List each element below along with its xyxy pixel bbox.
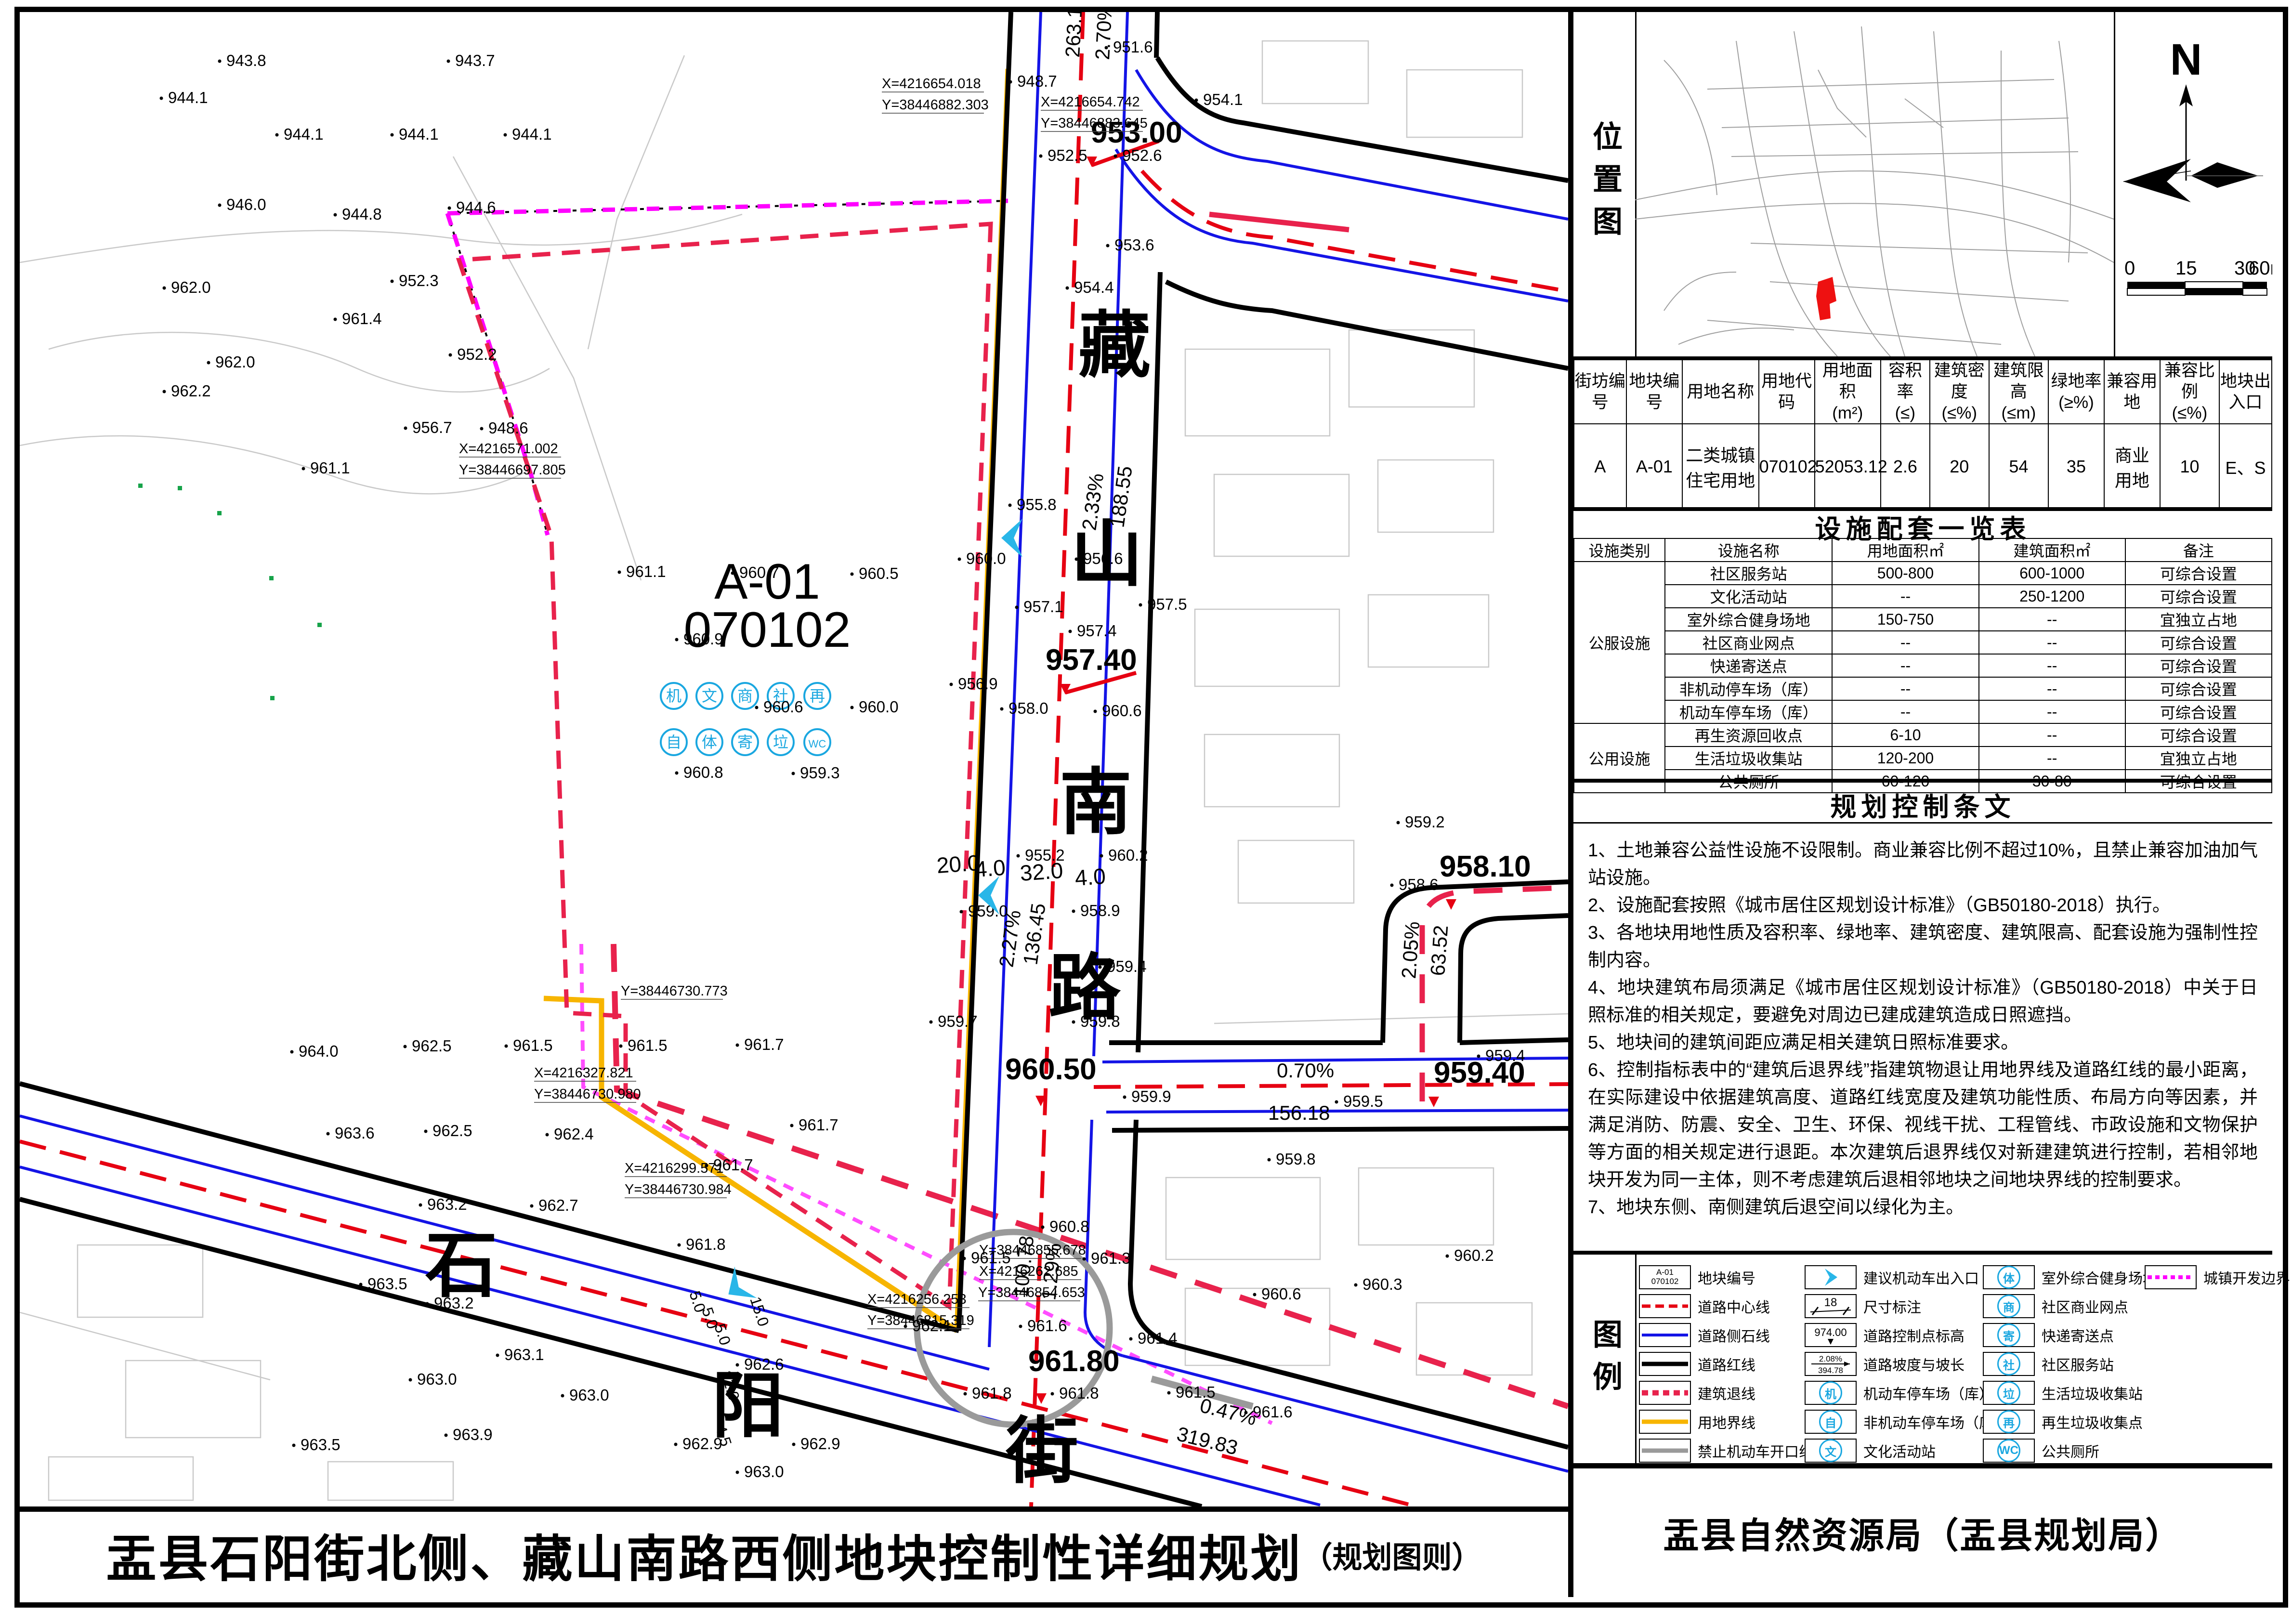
coordinate-x-label: X=4216654.018 bbox=[882, 76, 981, 92]
control-point-leaders bbox=[1065, 141, 1159, 693]
spot-elevation-value: 964.0 bbox=[299, 1042, 339, 1060]
facility-cell: 可综合设置 bbox=[2125, 677, 2272, 700]
facility-cell: 机动车停车场（库） bbox=[1665, 700, 1832, 723]
coordinate-y-label: Y=38446697.805 bbox=[459, 462, 566, 478]
location-map-row: 位置图 bbox=[1573, 12, 2272, 356]
legend-swatch-curb-icon bbox=[1639, 1323, 1691, 1347]
facility-cell: -- bbox=[1832, 631, 1978, 654]
legend-items: A-01070102地块编号道路中心线道路侧石线道路红线建筑退线用地界线禁止机动… bbox=[1635, 1255, 2272, 1467]
spot-elevation-value: 960.6 bbox=[763, 698, 803, 716]
dimension-value: 20.0 bbox=[936, 850, 981, 878]
indicator-cell: 10 bbox=[2160, 424, 2219, 510]
legend-item: 18尺寸标注 bbox=[1805, 1292, 2008, 1320]
spot-elevation-value: 959.5 bbox=[1343, 1092, 1383, 1110]
location-inset-map bbox=[1635, 12, 2115, 356]
agency-title: 盂县自然资源局（盂县规划局） bbox=[1573, 1463, 2272, 1597]
coordinate-y-label: Y=38446730.980 bbox=[534, 1087, 641, 1102]
legend-item: 道路红线 bbox=[1639, 1350, 1813, 1378]
north-label: N bbox=[2170, 35, 2202, 84]
spot-elevation-value: 957.5 bbox=[1147, 595, 1187, 613]
spot-elevation-dot bbox=[618, 571, 621, 574]
facility-col-header: 建筑面积㎡ bbox=[1979, 538, 2125, 562]
legend-swatch-circle-icon: 商 bbox=[1983, 1294, 2035, 1318]
scale-tick: 60m bbox=[2249, 258, 2272, 279]
facility-cell: 文化活动站 bbox=[1665, 585, 1832, 608]
legend-swatch-entrance-icon bbox=[1805, 1265, 1857, 1289]
spot-elevation-value: 963.6 bbox=[335, 1124, 375, 1142]
legend-item: 建议机动车出入口 bbox=[1805, 1263, 2008, 1291]
spot-elevation-value: 956.7 bbox=[412, 419, 452, 436]
spot-elevation-dot bbox=[1015, 606, 1019, 609]
facility-cell: 可综合设置 bbox=[2125, 723, 2272, 747]
spot-elevation-dot bbox=[448, 207, 451, 210]
legend-swatch-noopen-icon bbox=[1639, 1439, 1691, 1463]
dimension-value: 4.0 bbox=[974, 855, 1006, 882]
spot-elevation-value: 963.0 bbox=[569, 1386, 609, 1404]
info-panel: 位置图 bbox=[1573, 12, 2272, 1592]
spot-elevation-value: 962.2 bbox=[171, 382, 211, 400]
legend-column: 城镇开发边界 bbox=[2145, 1263, 2290, 1292]
spot-elevation-value: 961.7 bbox=[799, 1116, 838, 1134]
facility-col-header: 用地面积㎡ bbox=[1832, 538, 1978, 562]
indicator-cell: 商业 用地 bbox=[2104, 424, 2160, 510]
spot-elevation-dot bbox=[1139, 603, 1142, 607]
spot-elevation-dot bbox=[1354, 1283, 1358, 1287]
spot-elevation-value: 954.1 bbox=[1203, 91, 1243, 108]
spot-elevation-dot bbox=[207, 361, 210, 365]
spot-elevation-dot bbox=[1477, 1055, 1480, 1058]
indicator-col-header: 地块编号 bbox=[1626, 360, 1682, 424]
parcel-code: A-01 bbox=[714, 554, 820, 610]
legend-item: 寄快递寄送点 bbox=[1983, 1321, 2157, 1349]
spot-elevation-value: 960.2 bbox=[1454, 1246, 1494, 1264]
spot-elevation-dot bbox=[292, 1444, 296, 1447]
spot-elevation-value: 959.8 bbox=[1080, 1012, 1120, 1030]
spot-elevation-value: 948.7 bbox=[1017, 72, 1057, 90]
spot-elevation-value: 961.7 bbox=[713, 1156, 753, 1174]
slope-length-label: 136.45 bbox=[1019, 902, 1049, 966]
legend-swatch-circle-icon: 自 bbox=[1805, 1410, 1857, 1434]
facility-cell: -- bbox=[1832, 677, 1978, 700]
spot-elevation-value: 960.7 bbox=[739, 563, 779, 581]
spot-elevation-dot bbox=[851, 706, 854, 709]
plan-map-svg: 藏山南路石阳街 A-01070102 机文商社再自体寄垃WC 953.00957… bbox=[20, 12, 1568, 1506]
legend-item-label: 禁止机动车开口线 bbox=[1698, 1440, 1813, 1461]
facility-cell: 可综合设置 bbox=[2125, 654, 2272, 677]
plan-sheet: 藏山南路石阳街 A-01070102 机文商社再自体寄垃WC 953.00957… bbox=[14, 7, 2288, 1608]
indicator-cell: E、S bbox=[2219, 424, 2272, 510]
spot-elevation-dot bbox=[904, 1325, 907, 1328]
legend-section: 图例 A-01070102地块编号道路中心线道路侧石线道路红线建筑退线用地界线禁… bbox=[1573, 1251, 2272, 1467]
indicator-cell: A-01 bbox=[1626, 424, 1682, 510]
legend-item: 文文化活动站 bbox=[1805, 1437, 2008, 1465]
facility-cell: 非机动停车场（库） bbox=[1665, 677, 1832, 700]
spot-elevation-value: 961.3 bbox=[1091, 1249, 1131, 1267]
spot-elevation-value: 963.2 bbox=[434, 1294, 474, 1312]
legend-item: 机机动车停车场（库） bbox=[1805, 1379, 2008, 1407]
legend-item: 974.00道路控制点标高 bbox=[1805, 1321, 2008, 1349]
indicator-col-header: 地块出 入口 bbox=[2219, 360, 2272, 424]
facility-category-cell: 公服设施 bbox=[1574, 562, 1665, 723]
spot-elevation-value: 960.9 bbox=[683, 630, 723, 648]
spot-elevation-dot bbox=[1009, 80, 1012, 84]
spot-elevation-dot bbox=[1100, 854, 1103, 858]
coordinate-x-label: X=4216654.742 bbox=[1041, 94, 1140, 110]
facility-cell: 快递寄送点 bbox=[1665, 654, 1832, 677]
provision-item: 3、各地块用地性质及容积率、绿地率、建筑密度、建筑限高、配套设施为强制性控制内容… bbox=[1588, 919, 2258, 974]
spot-elevation-value: 960.5 bbox=[859, 564, 899, 582]
spot-elevation-dot bbox=[731, 572, 734, 575]
scale-tick: 15 bbox=[2175, 258, 2197, 279]
indicator-cell: 070102 bbox=[1759, 424, 1815, 510]
spot-elevation-value: 960.8 bbox=[1049, 1218, 1089, 1235]
spot-elevation-value: 954.4 bbox=[1074, 278, 1114, 296]
spot-elevation-value: 956.6 bbox=[1083, 550, 1123, 567]
spot-elevation-dot bbox=[963, 1257, 966, 1260]
svg-text:394.78: 394.78 bbox=[1818, 1366, 1843, 1375]
spot-elevation-value: 962.7 bbox=[538, 1196, 578, 1214]
facility-cell: 室外综合健身场地 bbox=[1665, 608, 1832, 631]
legend-item-label: 文化活动站 bbox=[1863, 1440, 1936, 1461]
spot-elevation-dot bbox=[1083, 1257, 1086, 1261]
facility-circle-letter: 再 bbox=[810, 687, 825, 705]
spot-elevation-value: 960.0 bbox=[859, 698, 899, 716]
spot-elevation-dot bbox=[736, 1044, 739, 1047]
legend-item: 社社区服务站 bbox=[1983, 1350, 2157, 1378]
facility-circle-letter: 自 bbox=[666, 733, 681, 751]
spot-elevation-value: 958.6 bbox=[1399, 876, 1439, 893]
spot-elevation-value: 944.1 bbox=[284, 125, 324, 143]
legend-item-label: 社区商业网点 bbox=[2042, 1296, 2128, 1317]
coordinate-x-label: Y=38446854.653 bbox=[978, 1285, 1085, 1300]
spot-elevation-dot bbox=[851, 573, 854, 576]
facility-col-header: 设施名称 bbox=[1665, 538, 1832, 562]
spot-elevation-dot bbox=[1105, 46, 1108, 50]
legend-item-label: 道路坡度与坡长 bbox=[1863, 1353, 1965, 1375]
spot-elevation-dot bbox=[1129, 1337, 1133, 1341]
spot-elevation-value: 957.4 bbox=[1077, 622, 1117, 640]
spot-elevation-value: 962.9 bbox=[682, 1435, 722, 1453]
spot-elevation-value: 961.5 bbox=[971, 1249, 1011, 1267]
spot-elevation-dot bbox=[160, 97, 163, 100]
indicator-cell: 二类城镇 住宅用地 bbox=[1682, 424, 1759, 510]
legend-swatch-circle-icon: 垃 bbox=[1983, 1381, 2035, 1405]
facility-circle-letter: 商 bbox=[737, 687, 753, 705]
spot-elevation-dot bbox=[736, 1471, 739, 1474]
legend-swatch-devedge-icon bbox=[2145, 1265, 2197, 1289]
spot-elevation-dot bbox=[505, 1045, 508, 1048]
spot-elevation-value: 961.8 bbox=[1059, 1384, 1099, 1402]
dimension-value: 15.0 bbox=[747, 1295, 772, 1328]
facility-cell: 宜独立占地 bbox=[2125, 747, 2272, 770]
legend-swatch-landline-icon bbox=[1639, 1410, 1691, 1434]
spot-elevation-dot bbox=[449, 354, 452, 357]
legend-swatch-circle-icon: 机 bbox=[1805, 1381, 1857, 1405]
spot-elevation-value: 959.7 bbox=[938, 1012, 978, 1030]
legend-item-label: 建筑退线 bbox=[1698, 1382, 1755, 1403]
spot-elevation-value: 952.5 bbox=[1048, 146, 1087, 164]
facility-cell: -- bbox=[1832, 700, 1978, 723]
facility-cell: -- bbox=[1979, 608, 2125, 631]
spot-elevation-value: 944.1 bbox=[399, 125, 439, 143]
spot-elevation-value: 958.9 bbox=[1080, 902, 1120, 919]
spot-elevation-value: 959.3 bbox=[800, 764, 840, 782]
facility-circle-letter: 文 bbox=[702, 687, 717, 705]
legend-column: A-01070102地块编号道路中心线道路侧石线道路红线建筑退线用地界线禁止机动… bbox=[1639, 1263, 1813, 1466]
legend-item-label: 地块编号 bbox=[1698, 1267, 1755, 1288]
spot-elevation-value: 959.4 bbox=[1485, 1047, 1525, 1064]
facility-cell: 可综合设置 bbox=[2125, 585, 2272, 608]
road-ne-branch bbox=[1116, 58, 1568, 368]
spot-elevation-value: 960.6 bbox=[1261, 1285, 1301, 1303]
scale-tick: 0 bbox=[2124, 258, 2135, 279]
spot-elevation-dot bbox=[561, 1394, 564, 1398]
legend-swatch-circle-icon: 文 bbox=[1805, 1439, 1857, 1463]
legend-item: 垃生活垃圾收集站 bbox=[1983, 1379, 2157, 1407]
coordinate-y-label: Y=38446883.645 bbox=[1041, 116, 1148, 131]
spot-elevation-dot bbox=[1268, 1158, 1271, 1162]
spot-elevation-dot bbox=[546, 1133, 549, 1137]
spot-elevation-value: 963.5 bbox=[367, 1275, 407, 1293]
dimension-value: 4.0 bbox=[1074, 864, 1106, 891]
spot-elevation-value: 961.4 bbox=[342, 310, 382, 327]
legend-item-label: 再生垃圾收集点 bbox=[2042, 1411, 2143, 1432]
spot-elevation-value: 960.0 bbox=[966, 550, 1006, 567]
legend-item-label: 生活垃圾收集站 bbox=[2042, 1382, 2143, 1403]
sheet-title-band: 盂县石阳街北侧、藏山南路西侧地块控制性详细规划 （规划图则） bbox=[20, 1506, 1573, 1597]
spot-elevation-value: 962.0 bbox=[171, 278, 211, 296]
spot-elevation-dot bbox=[1446, 1255, 1449, 1258]
facility-cell: 再生资源回收点 bbox=[1665, 723, 1832, 747]
svg-text:18: 18 bbox=[1824, 1296, 1837, 1309]
indicator-cell: 2.6 bbox=[1881, 424, 1930, 510]
legend-column: 体室外综合健身场地商社区商业网点寄快递寄送点社社区服务站垃生活垃圾收集站再再生垃… bbox=[1983, 1263, 2157, 1466]
legend-item-label: 室外综合健身场地 bbox=[2042, 1267, 2157, 1288]
spot-elevation-dot bbox=[674, 1443, 678, 1446]
coordinate-x-label: X=4216256.253 bbox=[867, 1292, 967, 1307]
provision-item: 6、控制指标表中的“建筑后退界线”指建筑物退让用地界线及道路红线的最小距离，在实… bbox=[1588, 1057, 2258, 1194]
legend-swatch-circle-icon: 寄 bbox=[1983, 1323, 2035, 1347]
coordinate-x-label: X=4216327.821 bbox=[534, 1065, 633, 1081]
spot-elevation-value: 961.8 bbox=[972, 1384, 1012, 1402]
provisions-title: 规划控制条文 bbox=[1573, 779, 2272, 826]
legend-swatch-slope-icon: 2.08%394.78 bbox=[1805, 1352, 1857, 1376]
spot-elevation-value: 961.5 bbox=[628, 1036, 668, 1054]
facility-col-header: 设施类别 bbox=[1574, 538, 1665, 562]
spot-elevation-dot bbox=[302, 467, 305, 471]
spot-elevation-dot bbox=[930, 1021, 933, 1024]
spot-elevation-value: 960.3 bbox=[1362, 1275, 1402, 1293]
spot-elevation-value: 959.8 bbox=[1276, 1150, 1316, 1168]
legend-item-label: 尺寸标注 bbox=[1863, 1296, 1921, 1317]
coordinate-y-label: Y=38446882.303 bbox=[882, 97, 989, 113]
facility-table-title: 设施配套一览表 bbox=[1573, 507, 2272, 542]
spot-elevation-value: 944.8 bbox=[342, 205, 382, 223]
facility-cell: 120-200 bbox=[1832, 747, 1978, 770]
spot-elevation-value: 948.6 bbox=[488, 419, 528, 437]
legend-item: 城镇开发边界 bbox=[2145, 1263, 2290, 1291]
spot-elevation-value: 962.6 bbox=[744, 1355, 784, 1373]
spot-elevation-dot bbox=[1066, 287, 1069, 290]
spot-elevation-value: 951.6 bbox=[1113, 38, 1153, 56]
legend-item: 再再生垃圾收集点 bbox=[1983, 1408, 2157, 1436]
legend-item: 自非机动车停车场（库） bbox=[1805, 1408, 2008, 1436]
spot-elevation-dot bbox=[1390, 884, 1394, 887]
spot-elevation-dot bbox=[404, 1045, 407, 1048]
spot-elevation-dot bbox=[736, 1363, 739, 1367]
facility-cell: -- bbox=[1979, 747, 2125, 770]
spot-elevation-dot bbox=[530, 1205, 534, 1208]
spot-elevation-dot bbox=[1069, 630, 1072, 633]
spot-elevation-dot bbox=[1397, 821, 1400, 825]
spot-elevation-value: 952.3 bbox=[399, 272, 439, 289]
slope-grade-label: 0.70% bbox=[1277, 1059, 1334, 1082]
spot-elevation-dot bbox=[950, 683, 953, 686]
facility-cell: -- bbox=[1832, 654, 1978, 677]
indicator-cell: A bbox=[1574, 424, 1626, 510]
facility-icon-circles: 机文商社再自体寄垃WC bbox=[661, 683, 830, 755]
spot-elevation-dot bbox=[964, 1392, 967, 1396]
spot-elevation-dot bbox=[163, 287, 166, 290]
spot-elevation-dot bbox=[419, 1204, 422, 1207]
coordinate-x-label: Y=38446730.773 bbox=[621, 983, 728, 999]
spot-elevation-value: 960.2 bbox=[1108, 846, 1148, 864]
spot-elevation-value: 961.5 bbox=[1176, 1383, 1216, 1401]
spot-elevation-value: 955.2 bbox=[1025, 846, 1065, 864]
spot-elevation-value: 961.8 bbox=[686, 1235, 726, 1253]
facility-table: 设施类别设施名称用地面积㎡建筑面积㎡备注公服设施社区服务站500-800600-… bbox=[1573, 538, 2272, 779]
spot-elevation-dot bbox=[424, 1130, 428, 1133]
facility-circle-letter: 垃 bbox=[773, 733, 788, 751]
legend-item-label: 用地界线 bbox=[1698, 1411, 1755, 1432]
spot-elevation-value: 961.4 bbox=[1138, 1329, 1178, 1347]
indicator-col-header: 绿地率 (≥%) bbox=[2048, 360, 2104, 424]
facility-cell: -- bbox=[1979, 654, 2125, 677]
spot-elevation-dot bbox=[960, 910, 963, 914]
spot-elevation-dot bbox=[1039, 155, 1043, 158]
slope-length-label: 156.18 bbox=[1268, 1101, 1330, 1124]
dimension-value: 5.0 bbox=[711, 1322, 734, 1347]
road-control-point-elevation: 960.50 bbox=[1005, 1053, 1097, 1086]
spot-elevation-dot bbox=[1114, 155, 1117, 158]
provisions-text: 1、土地兼容公益性设施不设限制。商业兼容比例不超过10%，且禁止兼容加油加气站设… bbox=[1573, 822, 2272, 1251]
road-name-char: 藏 bbox=[1078, 305, 1151, 386]
main-plan-map: 藏山南路石阳街 A-01070102 机文商社再自体寄垃WC 953.00957… bbox=[20, 12, 1573, 1506]
spot-elevation-value: 962.0 bbox=[215, 353, 255, 371]
indicator-table: 街坊编号地块编号用地名称用地代码用地面积 (m²)容积率 (≤)建筑密度 (≤%… bbox=[1573, 356, 2272, 510]
wind-rose-icon bbox=[2123, 159, 2263, 202]
spot-elevation-value: 959.9 bbox=[1131, 1087, 1171, 1105]
legend-swatch-circle-icon: 体 bbox=[1983, 1265, 2035, 1289]
facility-cell: -- bbox=[1979, 700, 2125, 723]
indicator-cell: 35 bbox=[2048, 424, 2104, 510]
spot-elevation-value: 944.1 bbox=[168, 89, 208, 106]
spot-elevation-value: 961.7 bbox=[744, 1035, 784, 1053]
spot-elevation-value: 952.2 bbox=[457, 345, 497, 363]
spot-elevation-dot bbox=[1008, 504, 1012, 507]
indicator-col-header: 用地名称 bbox=[1682, 360, 1759, 424]
spot-elevation-dot bbox=[1072, 910, 1075, 913]
sheet-title-paren: （规划图则） bbox=[1303, 1533, 1482, 1576]
spot-elevation-dot bbox=[1195, 99, 1198, 102]
indicator-col-header: 容积率 (≤) bbox=[1881, 360, 1930, 424]
slope-grade-label: 2.05% bbox=[1397, 921, 1424, 980]
spot-elevation-dot bbox=[705, 1164, 708, 1167]
spot-elevation-dot bbox=[218, 204, 222, 207]
spot-elevation-dot bbox=[290, 1050, 294, 1054]
spot-elevation-value: 955.8 bbox=[1017, 496, 1057, 513]
spot-elevation-dot bbox=[1099, 966, 1102, 969]
legend-swatch-dim-icon: 18 bbox=[1805, 1294, 1857, 1318]
facility-cell: 社区服务站 bbox=[1665, 562, 1832, 585]
location-map-label: 位置图 bbox=[1583, 121, 1626, 248]
legend-item: 商社区商业网点 bbox=[1983, 1292, 2157, 1320]
legend-item-label: 道路红线 bbox=[1698, 1353, 1755, 1375]
spot-elevation-dot bbox=[404, 427, 407, 430]
spot-elevation-dot bbox=[792, 772, 795, 775]
spot-elevation-value: 944.6 bbox=[456, 198, 496, 216]
spot-elevation-dot bbox=[334, 318, 337, 321]
spot-elevation-value: 957.1 bbox=[1023, 598, 1063, 616]
spot-elevation-value: 944.1 bbox=[512, 125, 552, 143]
spot-elevation-value: 963.1 bbox=[504, 1346, 544, 1363]
spot-elevation-value: 959.4 bbox=[1107, 957, 1147, 975]
spot-elevation-value: 961.5 bbox=[513, 1036, 553, 1054]
facility-cell: 生活垃圾收集站 bbox=[1665, 747, 1832, 770]
coordinate-x-label: X=4216571.002 bbox=[459, 441, 558, 457]
legend-item: 禁止机动车开口线 bbox=[1639, 1437, 1813, 1465]
road-name-char: 街 bbox=[1005, 1411, 1078, 1492]
road-name-char: 南 bbox=[1060, 762, 1132, 843]
road-control-point-elevation: 957.40 bbox=[1046, 643, 1137, 677]
spot-elevation-value: 959.0 bbox=[968, 902, 1008, 920]
spot-elevation-value: 962.9 bbox=[800, 1435, 840, 1453]
provision-item: 7、地块东侧、南侧建筑后退空间以绿化为主。 bbox=[1588, 1194, 2258, 1221]
spot-elevation-dot bbox=[1019, 1325, 1022, 1328]
spot-elevation-dot bbox=[447, 60, 450, 63]
spot-elevation-value: 943.7 bbox=[455, 52, 495, 69]
spot-elevation-value: 963.2 bbox=[427, 1195, 467, 1213]
legend-item: WC公共厕所 bbox=[1983, 1437, 2157, 1465]
inset-subject-parcel bbox=[1816, 277, 1836, 320]
legend-item: 建筑退线 bbox=[1639, 1379, 1813, 1407]
legend-column: 建议机动车出入口18尺寸标注974.00道路控制点标高2.08%394.78道路… bbox=[1805, 1263, 2008, 1466]
spot-elevation-value: 952.6 bbox=[1122, 146, 1162, 164]
coordinate-y-label: Y=38446730.984 bbox=[625, 1182, 732, 1197]
legend-item: A-01070102地块编号 bbox=[1639, 1263, 1813, 1291]
sheet-title: 盂县石阳街北侧、藏山南路西侧地块控制性详细规划 bbox=[106, 1518, 1302, 1591]
provision-item: 1、土地兼容公益性设施不设限制。商业兼容比例不超过10%，且禁止兼容加油加气站设… bbox=[1588, 837, 2258, 892]
spot-elevation-dot bbox=[1017, 854, 1020, 858]
spot-elevation-value: 943.8 bbox=[226, 52, 266, 69]
facility-cell: 可综合设置 bbox=[2125, 562, 2272, 585]
coordinate-x-label: X=4216299.571 bbox=[625, 1161, 724, 1176]
spot-elevation-dot bbox=[426, 1302, 429, 1306]
spot-elevation-dot bbox=[792, 1443, 796, 1446]
legend-item-label: 城镇开发边界 bbox=[2203, 1267, 2290, 1288]
spot-elevation-dot bbox=[391, 133, 394, 137]
slope-length-label: 263.18 bbox=[1061, 12, 1087, 58]
building-setback-line bbox=[459, 224, 991, 1307]
indicator-cell: 20 bbox=[1930, 424, 1989, 510]
spot-elevation-value: 962.5 bbox=[412, 1037, 452, 1055]
road-name-char: 石 bbox=[425, 1225, 498, 1306]
legend-item-label: 快递寄送点 bbox=[2042, 1324, 2114, 1346]
provision-item: 5、地块间的建筑间距应满足相关建筑日照标准要求。 bbox=[1588, 1029, 2258, 1057]
indicator-cell: 52053.12 bbox=[1815, 424, 1881, 510]
spot-elevation-value: 958.0 bbox=[1008, 699, 1048, 717]
spot-elevation-dot bbox=[496, 1354, 499, 1357]
